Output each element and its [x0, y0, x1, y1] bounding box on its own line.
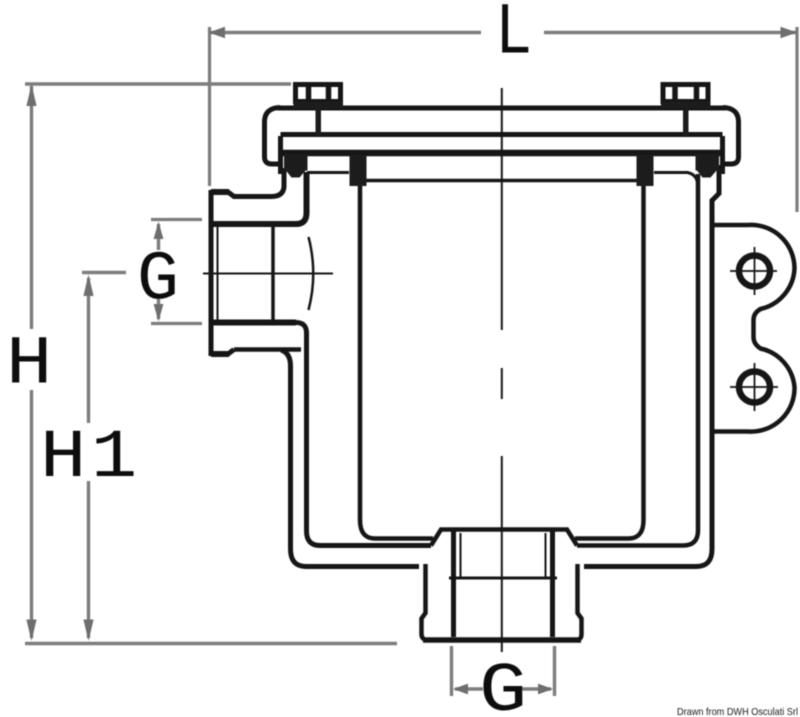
svg-text:H1: H1	[40, 419, 142, 497]
svg-text:Drawn from DWH Osculati Srl: Drawn from DWH Osculati Srl	[677, 706, 798, 717]
svg-text:H: H	[6, 325, 52, 403]
svg-text:G: G	[137, 242, 179, 321]
svg-text:L: L	[495, 0, 532, 75]
svg-text:G: G	[479, 652, 527, 717]
